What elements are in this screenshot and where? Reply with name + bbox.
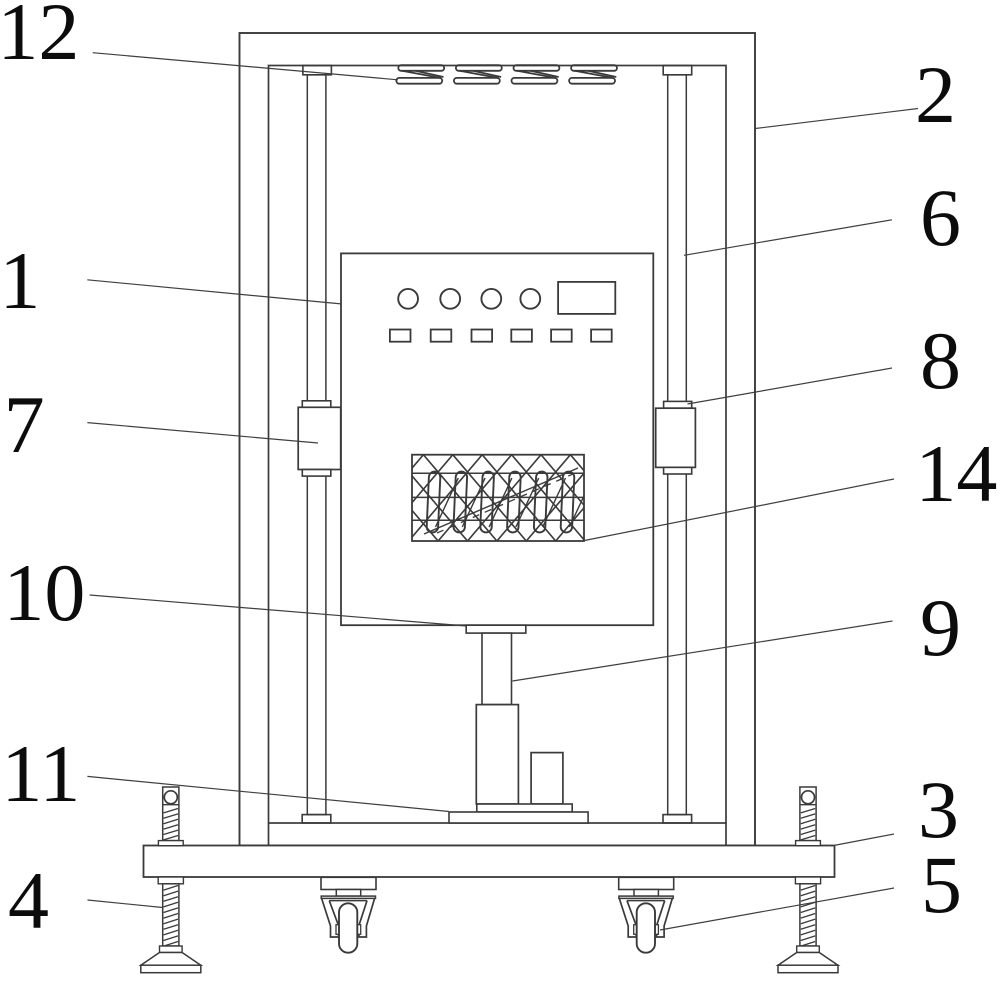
svg-text:2: 2 bbox=[915, 49, 956, 140]
svg-text:10: 10 bbox=[3, 547, 85, 638]
svg-text:7: 7 bbox=[4, 379, 45, 470]
svg-text:6: 6 bbox=[920, 172, 961, 263]
svg-text:12: 12 bbox=[0, 0, 79, 77]
svg-text:5: 5 bbox=[921, 839, 962, 930]
svg-text:1: 1 bbox=[0, 235, 40, 326]
svg-text:4: 4 bbox=[8, 855, 49, 946]
svg-text:14: 14 bbox=[915, 428, 997, 519]
svg-text:9: 9 bbox=[920, 582, 961, 673]
svg-text:11: 11 bbox=[1, 728, 80, 819]
svg-text:8: 8 bbox=[920, 315, 961, 406]
